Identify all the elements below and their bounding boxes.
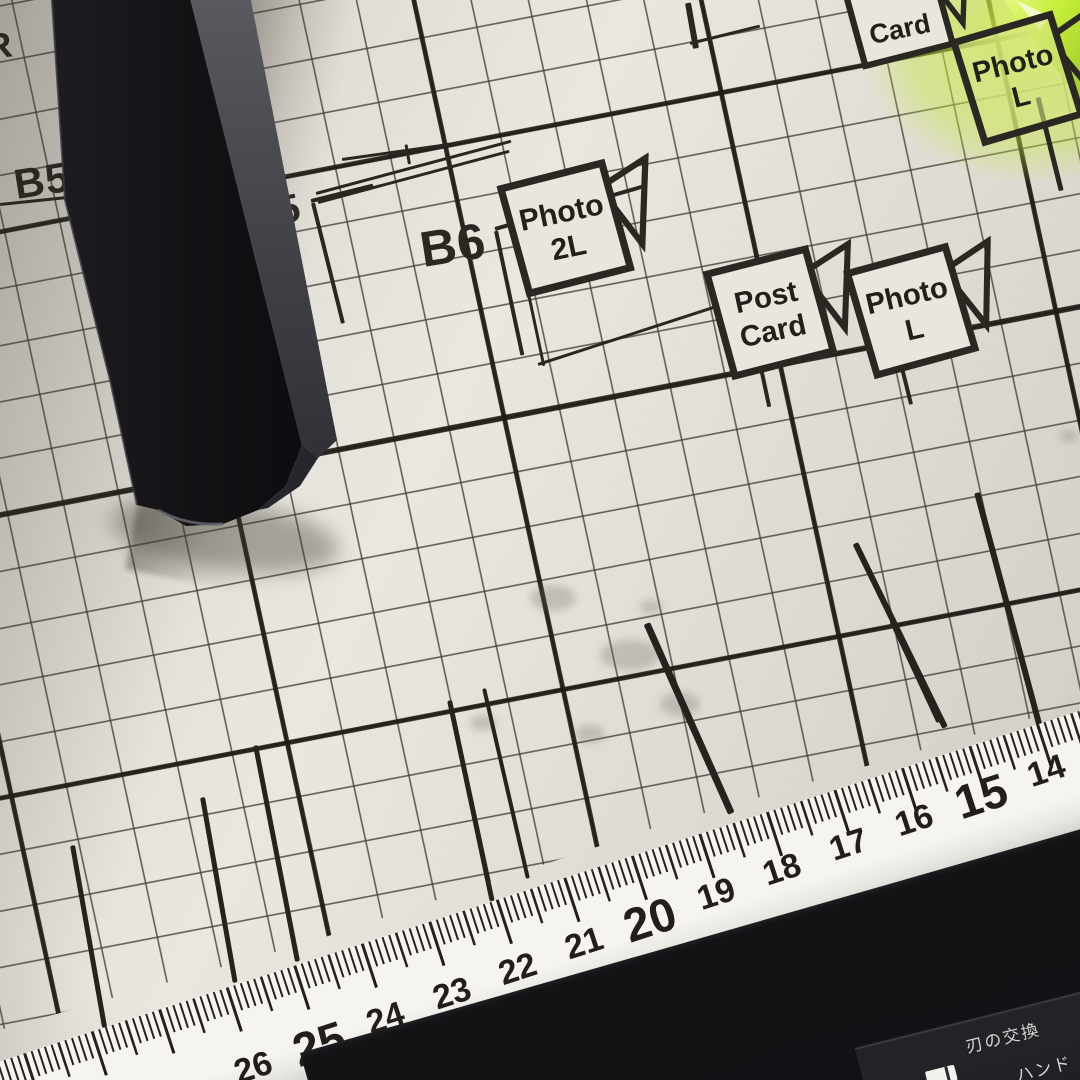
blade-change-label: 刃の交換 <box>963 1015 1043 1058</box>
dust-smudge <box>1060 430 1078 442</box>
paper-cutter-photo: R B5 A5 B6 Photo 2L Post Card Photo L Ph… <box>0 0 1080 1080</box>
mat-label-b6: B6 <box>416 215 489 275</box>
dust-smudge <box>600 640 660 670</box>
dust-smudge <box>530 585 576 611</box>
ruler-number: 26 <box>214 1040 293 1080</box>
dust-smudge <box>640 600 662 614</box>
handle-diagram-icon <box>925 1065 958 1080</box>
clamp-arm <box>18 0 378 566</box>
dust-smudge <box>575 725 605 743</box>
handle-label-partial: ハンド <box>1013 1048 1074 1080</box>
